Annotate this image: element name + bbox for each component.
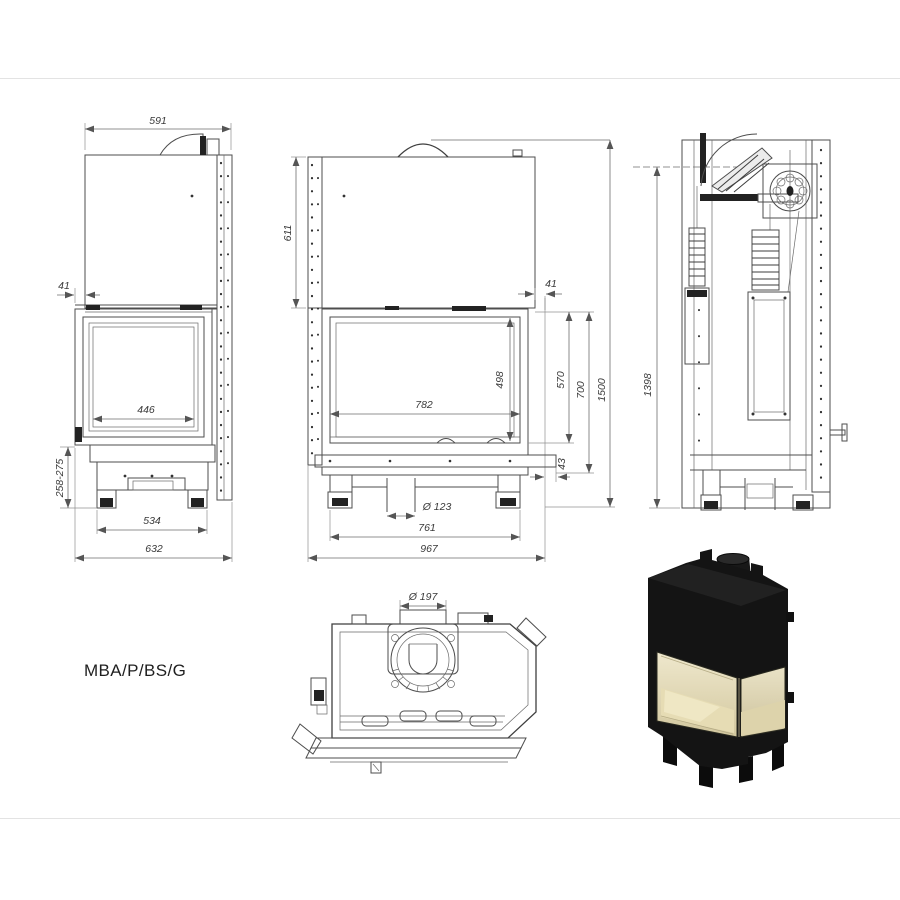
dim-right-height: 1398: [642, 373, 654, 397]
dim-front-flue-bottom: Ø 123: [422, 501, 452, 513]
drawing-canvas: 591 41 446: [0, 0, 900, 900]
dim-front-base-offset: 43: [556, 458, 568, 470]
dim-front-glass-height: 498: [494, 371, 506, 389]
top-view: Ø 197: [292, 591, 546, 773]
dim-top-flue-diameter: Ø 197: [408, 591, 439, 603]
dim-front-total-width: 967: [420, 543, 439, 555]
dim-left-total-depth: 632: [145, 543, 163, 555]
dim-front-body-height: 700: [575, 381, 587, 399]
dim-front-upper-height: 611: [282, 225, 294, 242]
side-view-left: 591 41 446: [54, 115, 232, 562]
dim-left-base-height: 258-275: [54, 459, 66, 499]
dim-front-glass-width: 782: [415, 399, 433, 411]
dim-front-side-offset: 41: [545, 278, 557, 290]
dim-left-feet-span: 534: [143, 515, 161, 527]
side-view-right: 1398: [633, 133, 847, 510]
dim-front-feet-span: 761: [418, 522, 436, 534]
dim-left-glass-width: 446: [137, 404, 155, 416]
technical-drawing-sheet: 591 41 446: [0, 0, 900, 900]
dim-front-total-height: 1500: [596, 378, 608, 402]
dim-left-front-offset: 41: [58, 280, 70, 292]
model-label: MBA/P/BS/G: [84, 661, 186, 681]
dim-front-door-height: 570: [555, 371, 567, 389]
front-view: 611 41 782 498 570 700: [282, 140, 615, 562]
product-3d-render: [648, 549, 794, 788]
dim-left-top-width: 591: [149, 115, 167, 127]
